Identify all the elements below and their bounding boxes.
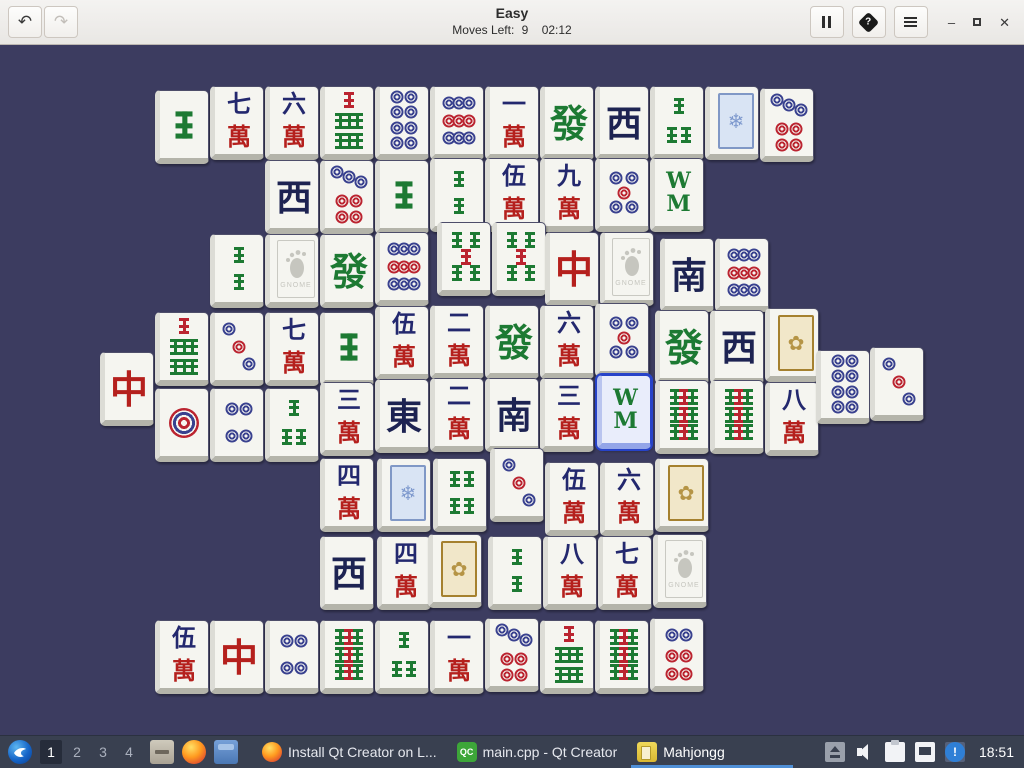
wind-glyph: 南: [665, 239, 713, 306]
circle-dot: [790, 139, 803, 152]
tile-wind-west[interactable]: 西: [320, 536, 374, 610]
tile-circles-3[interactable]: [210, 312, 264, 386]
circle-dot: [831, 370, 844, 383]
notification-icon[interactable]: [945, 742, 965, 762]
characters-number-glyph: 一: [435, 623, 483, 653]
tile-characters-3[interactable]: 三萬: [540, 378, 594, 452]
tile-characters-4[interactable]: 四萬: [377, 536, 431, 610]
bamboo-stick: [289, 400, 299, 416]
wan-glyph: 萬: [770, 418, 818, 448]
bamboo8-glyph: WM: [655, 159, 703, 226]
circle-dot: [240, 403, 253, 416]
characters-number-glyph: 七: [270, 315, 318, 345]
tile-wind-south[interactable]: 南: [485, 378, 539, 452]
pause-icon: [822, 16, 831, 28]
flower-art: ❄: [718, 93, 754, 149]
bamboo-stick: [176, 111, 193, 138]
pause-button[interactable]: [810, 6, 844, 38]
circle-dot: [665, 667, 678, 680]
circle-dot: [462, 114, 475, 127]
circle-dot: [893, 375, 906, 388]
volume-icon[interactable]: [855, 742, 875, 762]
tile-circles-7[interactable]: [485, 618, 539, 692]
taskbar-window-label: Install Qt Creator on L...: [288, 744, 437, 760]
circle-dot: [831, 401, 844, 414]
dragon-glyph: 發: [660, 311, 708, 378]
tile-bamboo-3[interactable]: [650, 86, 704, 160]
circle-dot: [775, 139, 788, 152]
wan-glyph: 萬: [435, 414, 483, 444]
maximize-button[interactable]: [973, 18, 981, 26]
characters-number-glyph: 三: [545, 381, 593, 411]
tile-characters-8[interactable]: 八萬: [765, 382, 819, 456]
tile-wind-south[interactable]: 南: [660, 238, 714, 312]
circle-dot: [902, 392, 915, 405]
circle-dot: [609, 316, 622, 329]
circle-dot: [225, 403, 238, 416]
window-buttons: Install Qt Creator on L...QCmain.cpp - Q…: [252, 736, 797, 768]
close-button[interactable]: ✕: [999, 16, 1010, 29]
tile-characters-6[interactable]: 六萬: [540, 305, 594, 379]
wan-glyph: 萬: [325, 494, 373, 524]
bamboo-stick: [674, 98, 684, 114]
taskbar-window-firefox[interactable]: Install Qt Creator on L...: [252, 736, 447, 768]
tile-characters-2[interactable]: 二萬: [430, 378, 484, 452]
firefox-launcher-icon[interactable]: [182, 740, 206, 764]
bamboo-stick: [406, 661, 416, 677]
tile-characters-1[interactable]: 一萬: [430, 620, 484, 694]
tile-bamboo-2[interactable]: [210, 234, 264, 308]
bamboo-stick: [628, 629, 638, 645]
bamboo-stick: [507, 265, 517, 281]
tile-wind-west[interactable]: 西: [595, 86, 649, 160]
tile-bamboo-9[interactable]: [655, 380, 709, 454]
circle-dot: [747, 249, 760, 262]
wan-glyph: 萬: [545, 194, 593, 224]
bamboo-stick: [573, 647, 583, 663]
moves-left-value: 9: [522, 23, 529, 37]
bamboo-stick: [461, 249, 471, 265]
tile-circles-9[interactable]: [715, 238, 769, 312]
tile-circles-5[interactable]: [595, 303, 649, 377]
wan-glyph: 萬: [550, 498, 598, 528]
taskbar-window-qtcreator[interactable]: QCmain.cpp - Qt Creator: [447, 736, 628, 768]
flower-art: ✿: [778, 315, 814, 371]
characters-number-glyph: 六: [270, 89, 318, 119]
wan-glyph: 萬: [603, 572, 651, 602]
tile-bamboo-7[interactable]: [540, 620, 594, 694]
tile-circles-4[interactable]: [210, 388, 264, 462]
circle-dot: [846, 370, 859, 383]
tile-circles-3[interactable]: [490, 448, 544, 522]
tile-characters-4[interactable]: 四萬: [320, 458, 374, 532]
wan-glyph: 萬: [270, 348, 318, 378]
characters-number-glyph: 七: [603, 539, 651, 569]
circle-dot: [295, 661, 308, 674]
bamboo-stick: [507, 232, 517, 248]
tile-characters-5[interactable]: 伍萬: [545, 462, 599, 536]
tile-circles-3[interactable]: [870, 347, 924, 421]
tile-circles-8[interactable]: [816, 350, 870, 424]
dragon-glyph: 中: [215, 621, 263, 688]
circle-dot: [405, 137, 418, 150]
circle-dot: [225, 429, 238, 442]
taskbar-window-mahjongg[interactable]: Mahjongg: [627, 736, 797, 768]
wind-glyph: 西: [270, 161, 318, 228]
moves-left-label: Moves Left:: [452, 23, 514, 37]
bamboo-stick: [234, 247, 244, 263]
bamboo-stick: [470, 265, 480, 281]
bamboo-stick: [399, 632, 409, 648]
circle-dot: [405, 91, 418, 104]
circle-dot: [295, 635, 308, 648]
characters-number-glyph: 伍: [550, 465, 598, 495]
tile-characters-1[interactable]: 一萬: [485, 86, 539, 160]
characters-number-glyph: 二: [435, 308, 483, 338]
tile-dragon-green[interactable]: 發: [655, 310, 709, 384]
bamboo-stick: [353, 629, 363, 645]
circle-dot: [747, 266, 760, 279]
tile-bamboo-8[interactable]: WM: [650, 158, 704, 232]
circle-dot: [500, 669, 513, 682]
bamboo-stick: [353, 647, 363, 663]
tile-characters-7[interactable]: 七萬: [598, 536, 652, 610]
launchers: [150, 740, 238, 764]
tile-characters-5[interactable]: 伍萬: [155, 620, 209, 694]
circle-dot: [405, 121, 418, 134]
tile-bamboo-8-selected[interactable]: WM: [597, 375, 651, 449]
circle-dot: [665, 649, 678, 662]
tile-bamboo-1[interactable]: [320, 312, 374, 386]
bamboo-stick: [525, 265, 535, 281]
tile-flower-gold[interactable]: ✿: [765, 308, 819, 382]
bamboo-stick: [667, 127, 677, 143]
wan-glyph: 萬: [605, 498, 653, 528]
workspace-4[interactable]: 4: [118, 740, 140, 764]
bamboo-stick: [681, 127, 691, 143]
bamboo-stick: [282, 429, 292, 445]
workspace-2[interactable]: 2: [66, 740, 88, 764]
tile-circles-7[interactable]: [760, 88, 814, 162]
circle-dot: [680, 629, 693, 642]
circle-dot: [350, 195, 363, 208]
wan-glyph: 萬: [160, 656, 208, 686]
dragon-glyph: 中: [105, 353, 153, 420]
wan-glyph: 萬: [215, 122, 263, 152]
headerbar: ↶ ↷ Easy Moves Left: 9 02:12 ? –: [0, 0, 1024, 45]
circle-dot: [240, 429, 253, 442]
circle-dot: [513, 476, 526, 489]
wan-glyph: 萬: [380, 342, 428, 372]
wind-glyph: 西: [715, 311, 763, 378]
bamboo-stick: [296, 429, 306, 445]
tile-flower-blue[interactable]: ❄: [705, 86, 759, 160]
circle-dot: [500, 653, 513, 666]
qtcreator-icon: QC: [457, 742, 477, 762]
undo-button[interactable]: ↶: [8, 6, 42, 38]
bamboo-stick: [688, 407, 698, 423]
circle-dot: [280, 661, 293, 674]
tile-circles-4[interactable]: [265, 620, 319, 694]
bamboo-stick: [564, 626, 574, 642]
wind-glyph: 西: [325, 537, 373, 604]
hamburger-icon: [904, 17, 917, 27]
bamboo-stick: [392, 661, 402, 677]
tile-characters-7[interactable]: 七萬: [265, 312, 319, 386]
circle-dot: [280, 635, 293, 648]
bamboo-stick: [512, 549, 522, 565]
tile-bamboo-7[interactable]: [155, 312, 209, 386]
circle-dot: [747, 283, 760, 296]
characters-number-glyph: 九: [545, 161, 593, 191]
tile-bamboo-9[interactable]: [595, 620, 649, 694]
tile-bamboo-5[interactable]: [437, 222, 491, 296]
circle-dot: [618, 186, 631, 199]
gnome-art: GNOME: [277, 240, 315, 298]
characters-number-glyph: 四: [325, 461, 373, 491]
circle-dot: [335, 195, 348, 208]
tile-circles-1[interactable]: [155, 388, 209, 462]
bamboo-stick: [452, 265, 462, 281]
tile-bamboo-2[interactable]: [430, 158, 484, 232]
circle-dot: [680, 667, 693, 680]
dragon-glyph: 發: [545, 87, 593, 154]
bamboo-stick: [743, 407, 753, 423]
tile-dragon-red[interactable]: 中: [210, 620, 264, 694]
tile-circles-7[interactable]: [320, 160, 374, 234]
tile-dragon-red[interactable]: 中: [100, 352, 154, 426]
bamboo-stick: [573, 667, 583, 683]
clipboard-icon[interactable]: [885, 742, 905, 762]
tile-bamboo-3[interactable]: [265, 388, 319, 462]
circle-dot: [223, 323, 236, 336]
tile-gnome[interactable]: GNOME: [600, 232, 654, 306]
bamboo-stick: [179, 318, 189, 334]
circle-dot: [242, 357, 255, 370]
bamboo-stick: [353, 664, 363, 680]
tile-bamboo-9[interactable]: [710, 380, 764, 454]
eject-icon[interactable]: [825, 742, 845, 762]
tile-circles-8[interactable]: [375, 86, 429, 160]
circle-dot: [665, 629, 678, 642]
circle-dot: [354, 176, 367, 189]
bamboo-stick: [512, 576, 522, 592]
circle-dot: [790, 123, 803, 136]
wan-glyph: 萬: [325, 418, 373, 448]
menu-button[interactable]: [894, 6, 928, 38]
circle-dot: [680, 649, 693, 662]
folder-icon[interactable]: [214, 740, 238, 764]
tile-circles-5[interactable]: [595, 158, 649, 232]
tile-gnome[interactable]: GNOME: [265, 234, 319, 308]
circle-dot: [609, 201, 622, 214]
hint-icon: ?: [858, 11, 879, 32]
circle-dot: [626, 201, 639, 214]
tile-bamboo-9[interactable]: [320, 620, 374, 694]
mahjongg-icon: [637, 742, 657, 762]
circle-dot: [390, 91, 403, 104]
flower-art: ✿: [668, 465, 704, 521]
tile-wind-east[interactable]: 東: [375, 379, 429, 453]
circle-dot: [618, 331, 631, 344]
bamboo-stick: [464, 498, 474, 514]
wan-glyph: 萬: [435, 341, 483, 371]
tile-bamboo-5[interactable]: [492, 222, 546, 296]
tile-characters-8[interactable]: 八萬: [543, 536, 597, 610]
characters-number-glyph: 三: [325, 385, 373, 415]
circle-dot: [846, 401, 859, 414]
firefox-icon: [262, 742, 282, 762]
bamboo-stick: [396, 181, 413, 208]
bamboo8-glyph: WM: [602, 376, 650, 443]
circle-dot: [519, 634, 532, 647]
system-tray: 18:51: [825, 742, 1024, 762]
tile-circles-6[interactable]: [650, 618, 704, 692]
circle-dot: [626, 171, 639, 184]
tile-characters-6[interactable]: 六萬: [265, 86, 319, 160]
bamboo-stick: [628, 647, 638, 663]
bamboo-stick: [344, 92, 354, 108]
tile-flower-blue[interactable]: ❄: [377, 458, 431, 532]
tile-characters-5[interactable]: 伍萬: [485, 158, 539, 232]
characters-number-glyph: 伍: [490, 161, 538, 191]
bamboo-stick: [464, 471, 474, 487]
wan-glyph: 萬: [435, 656, 483, 686]
dragon-glyph: 發: [325, 235, 373, 302]
app-menu-logo-icon[interactable]: [8, 740, 32, 764]
circle-dot: [515, 653, 528, 666]
circle-dot: [462, 97, 475, 110]
bamboo-stick: [688, 389, 698, 405]
characters-number-glyph: 四: [382, 539, 430, 569]
tile-dragon-green[interactable]: 發: [540, 86, 594, 160]
wan-glyph: 萬: [545, 414, 593, 444]
dragon-glyph: 發: [490, 306, 538, 373]
tile-gnome[interactable]: GNOME: [653, 534, 707, 608]
taskbar-window-label: Mahjongg: [663, 744, 725, 760]
tile-characters-7[interactable]: 七萬: [210, 86, 264, 160]
redo-button[interactable]: ↷: [44, 6, 78, 38]
bamboo-stick: [688, 424, 698, 440]
bamboo-stick: [743, 389, 753, 405]
timer-value: 02:12: [542, 23, 572, 37]
characters-number-glyph: 伍: [380, 309, 428, 339]
characters-number-glyph: 七: [215, 89, 263, 119]
circle-dot: [626, 346, 639, 359]
desktop: ↶ ↷ Easy Moves Left: 9 02:12 ? –: [0, 0, 1024, 768]
tile-characters-6[interactable]: 六萬: [600, 462, 654, 536]
circle-dot: [883, 358, 896, 371]
gnome-art: GNOME: [612, 238, 650, 296]
circle-dot: [831, 355, 844, 368]
wan-glyph: 萬: [548, 572, 596, 602]
tile-flower-gold[interactable]: ✿: [428, 534, 482, 608]
network-icon[interactable]: [915, 742, 935, 762]
circle-dot: [522, 493, 535, 506]
tile-dragon-red[interactable]: 中: [545, 232, 599, 306]
circle-dot: [775, 123, 788, 136]
tile-wind-west[interactable]: 西: [265, 160, 319, 234]
tile-flower-gold[interactable]: ✿: [655, 458, 709, 532]
tile-characters-3[interactable]: 三萬: [320, 382, 374, 456]
characters-number-glyph: 伍: [160, 623, 208, 653]
workspace-switcher: 1234: [40, 740, 140, 764]
bamboo-stick: [452, 232, 462, 248]
tile-dragon-green[interactable]: 發: [485, 305, 539, 379]
wind-glyph: 西: [600, 87, 648, 154]
bamboo-stick: [525, 232, 535, 248]
circle-dot: [626, 316, 639, 329]
hint-button[interactable]: ?: [852, 6, 886, 38]
tile-bamboo-3[interactable]: [375, 620, 429, 694]
characters-number-glyph: 六: [545, 308, 593, 338]
circle-dot: [831, 385, 844, 398]
bamboo-stick: [516, 249, 526, 265]
bamboo-stick: [234, 274, 244, 290]
wan-glyph: 萬: [270, 122, 318, 152]
wind-glyph: 東: [380, 380, 428, 447]
tile-bamboo-2[interactable]: [488, 536, 542, 610]
bamboo-stick: [628, 664, 638, 680]
characters-number-glyph: 六: [605, 465, 653, 495]
circle-dot: [609, 346, 622, 359]
tile-circles-9[interactable]: [375, 232, 429, 306]
circle-dot: [462, 131, 475, 144]
gnome-label: GNOME: [615, 280, 646, 287]
swallow-logo-icon: [12, 744, 28, 760]
bamboo-stick: [353, 113, 363, 129]
circle-dot: [846, 355, 859, 368]
bamboo-stick: [188, 359, 198, 375]
taskbar-window-label: main.cpp - Qt Creator: [483, 744, 618, 760]
wan-glyph: 萬: [490, 122, 538, 152]
circle-dot: [390, 121, 403, 134]
flower-art: ✿: [441, 541, 477, 597]
circle-dot: [350, 211, 363, 224]
tile-wind-west[interactable]: 西: [710, 310, 764, 384]
bamboo-stick: [470, 232, 480, 248]
tile-circles-9[interactable]: [430, 86, 484, 160]
tile-bamboo-1[interactable]: [155, 90, 209, 164]
workspace-1[interactable]: 1: [40, 740, 62, 764]
file-manager-icon[interactable]: [150, 740, 174, 764]
workspace-3[interactable]: 3: [92, 740, 114, 764]
gnome-art: GNOME: [665, 540, 703, 598]
circle-dot: [233, 340, 246, 353]
tile-characters-5[interactable]: 伍萬: [375, 306, 429, 380]
circle-dot: [846, 385, 859, 398]
mahjongg-board: 七萬六萬一萬發西❄西伍萬九萬WMGNOME發中GNOME南中七萬伍萬二萬發六萬發…: [0, 45, 1024, 735]
dragon-glyph: 中: [550, 233, 598, 300]
tile-dragon-green[interactable]: 發: [320, 234, 374, 308]
tile-bamboo-7[interactable]: [320, 86, 374, 160]
circle-dot: [335, 211, 348, 224]
wan-glyph: 萬: [545, 341, 593, 371]
bamboo-stick: [454, 171, 464, 187]
tile-characters-2[interactable]: 二萬: [430, 305, 484, 379]
circle-dot: [609, 171, 622, 184]
minimize-button[interactable]: –: [948, 16, 955, 29]
wind-glyph: 南: [490, 379, 538, 446]
tile-characters-9[interactable]: 九萬: [540, 158, 594, 232]
characters-number-glyph: 八: [770, 385, 818, 415]
characters-number-glyph: 八: [548, 539, 596, 569]
tile-bamboo-1[interactable]: [375, 160, 429, 234]
tile-bamboo-4[interactable]: [433, 458, 487, 532]
taskbar: 1234 Install Qt Creator on L...QCmain.cp…: [0, 735, 1024, 768]
wan-glyph: 萬: [382, 572, 430, 602]
characters-number-glyph: 二: [435, 381, 483, 411]
